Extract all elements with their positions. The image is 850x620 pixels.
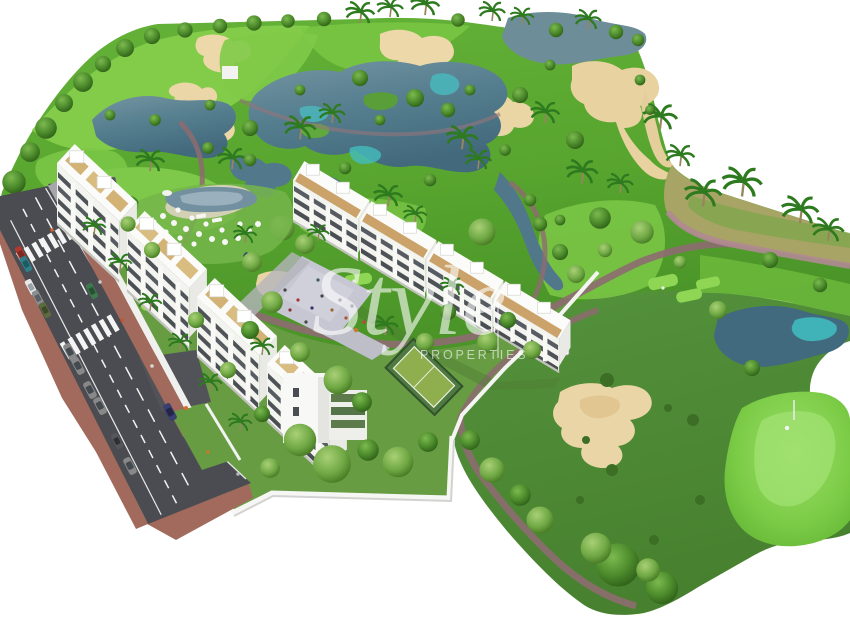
svg-text:PROPERTIES: PROPERTIES (420, 348, 528, 362)
svg-text:Style: Style (312, 245, 506, 356)
